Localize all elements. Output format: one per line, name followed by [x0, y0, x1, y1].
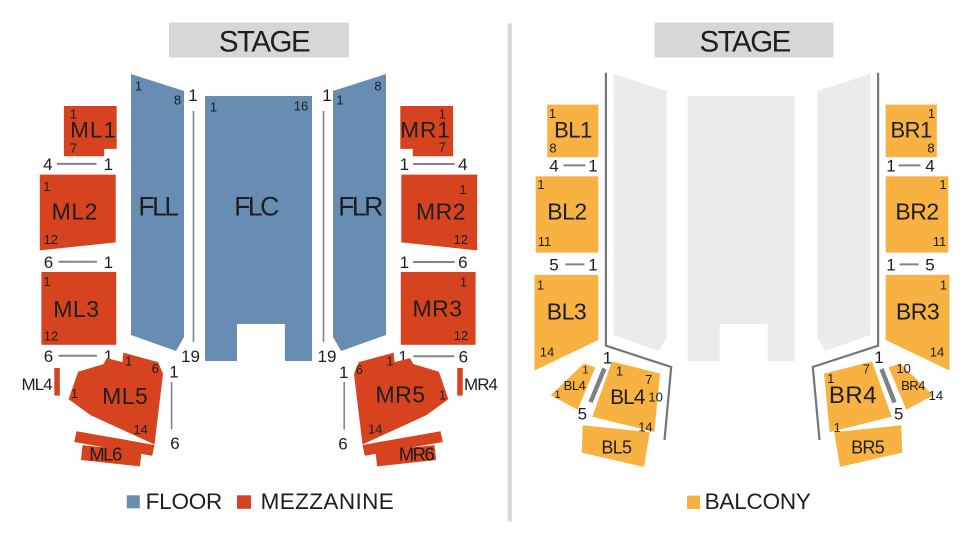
svg-text:1: 1 — [537, 278, 544, 293]
svg-text:1: 1 — [459, 182, 466, 197]
svg-text:6: 6 — [44, 253, 53, 272]
svg-text:5: 5 — [894, 404, 903, 423]
svg-text:MR2: MR2 — [416, 199, 466, 225]
svg-text:ML5: ML5 — [102, 383, 148, 409]
svg-text:8: 8 — [927, 141, 934, 156]
svg-text:1: 1 — [537, 177, 544, 192]
svg-text:12: 12 — [454, 328, 468, 343]
svg-text:MR5: MR5 — [375, 382, 425, 408]
svg-text:1: 1 — [336, 93, 343, 108]
svg-text:6: 6 — [170, 434, 179, 453]
svg-text:ML4: ML4 — [21, 375, 52, 394]
svg-text:1: 1 — [400, 155, 409, 174]
svg-text:1: 1 — [322, 86, 331, 105]
svg-text:1: 1 — [210, 100, 217, 115]
svg-text:BL1: BL1 — [554, 117, 592, 142]
svg-text:1: 1 — [439, 388, 446, 403]
svg-text:1: 1 — [104, 253, 113, 272]
svg-text:14: 14 — [930, 345, 944, 360]
svg-text:4: 4 — [549, 157, 558, 176]
svg-text:MR3: MR3 — [412, 296, 462, 322]
svg-text:1: 1 — [43, 274, 50, 289]
svg-text:12: 12 — [44, 328, 58, 343]
svg-text:BALCONY: BALCONY — [705, 489, 811, 514]
svg-text:1: 1 — [588, 256, 597, 275]
svg-text:1: 1 — [125, 353, 132, 368]
svg-text:5: 5 — [549, 256, 558, 275]
svg-text:10: 10 — [896, 361, 910, 376]
svg-text:1: 1 — [588, 157, 597, 176]
svg-text:1: 1 — [582, 365, 588, 377]
svg-text:11: 11 — [933, 234, 947, 249]
svg-text:6: 6 — [44, 347, 53, 366]
svg-text:10: 10 — [648, 390, 662, 405]
svg-text:BL4: BL4 — [564, 378, 586, 393]
svg-text:19: 19 — [181, 347, 200, 366]
svg-text:FLR: FLR — [338, 192, 382, 222]
svg-text:STAGE: STAGE — [700, 25, 791, 58]
svg-text:BR4: BR4 — [901, 378, 925, 393]
svg-text:BL4: BL4 — [610, 386, 646, 409]
svg-text:1: 1 — [135, 79, 142, 94]
svg-text:BR1: BR1 — [890, 117, 932, 142]
svg-text:8: 8 — [549, 141, 556, 156]
svg-text:BR4: BR4 — [829, 382, 877, 409]
svg-text:1: 1 — [71, 386, 78, 401]
svg-text:1: 1 — [339, 363, 348, 382]
svg-text:7: 7 — [645, 372, 652, 387]
svg-text:4: 4 — [925, 157, 934, 176]
svg-text:7: 7 — [863, 362, 870, 377]
svg-text:12: 12 — [44, 232, 58, 247]
svg-text:1: 1 — [616, 363, 623, 378]
svg-text:1: 1 — [940, 278, 947, 293]
svg-text:1: 1 — [460, 274, 467, 289]
svg-text:ML6: ML6 — [89, 444, 122, 465]
svg-text:BL5: BL5 — [601, 437, 632, 457]
svg-text:1: 1 — [886, 157, 895, 176]
svg-text:MR6: MR6 — [399, 444, 435, 465]
svg-text:MR4: MR4 — [464, 375, 497, 394]
svg-text:5: 5 — [578, 404, 587, 423]
svg-text:5: 5 — [925, 256, 934, 275]
svg-text:7: 7 — [439, 140, 446, 155]
svg-text:1: 1 — [886, 256, 895, 275]
svg-text:6: 6 — [152, 361, 159, 376]
svg-text:BR5: BR5 — [851, 437, 885, 457]
svg-text:1: 1 — [386, 354, 393, 369]
svg-text:1: 1 — [104, 155, 113, 174]
svg-text:1: 1 — [400, 253, 409, 272]
svg-text:1: 1 — [188, 86, 197, 105]
svg-text:STAGE: STAGE — [219, 25, 310, 58]
svg-text:FLC: FLC — [234, 192, 279, 222]
svg-text:16: 16 — [294, 99, 308, 114]
svg-text:19: 19 — [318, 347, 337, 366]
svg-text:FLOOR: FLOOR — [146, 489, 223, 514]
svg-text:1: 1 — [939, 177, 946, 192]
svg-text:FLL: FLL — [138, 192, 178, 222]
svg-text:1: 1 — [43, 179, 50, 194]
svg-text:6: 6 — [338, 435, 347, 454]
svg-text:ML1: ML1 — [70, 117, 117, 142]
svg-text:4: 4 — [43, 155, 52, 174]
svg-text:14: 14 — [929, 388, 943, 403]
svg-text:BL2: BL2 — [547, 199, 586, 225]
svg-text:ML2: ML2 — [52, 199, 98, 225]
svg-text:8: 8 — [374, 79, 381, 94]
svg-text:6: 6 — [459, 348, 468, 367]
svg-text:6: 6 — [458, 253, 467, 272]
svg-text:ML3: ML3 — [53, 296, 99, 322]
svg-text:1: 1 — [554, 389, 560, 401]
svg-text:BR3: BR3 — [896, 298, 939, 324]
svg-text:MEZZANINE: MEZZANINE — [261, 489, 395, 514]
svg-text:14: 14 — [368, 422, 382, 437]
svg-text:1: 1 — [874, 348, 883, 367]
svg-text:BR2: BR2 — [895, 199, 938, 225]
svg-text:1: 1 — [169, 363, 178, 382]
svg-text:14: 14 — [540, 345, 554, 360]
svg-text:4: 4 — [458, 155, 467, 174]
svg-text:8: 8 — [174, 93, 181, 108]
svg-text:7: 7 — [70, 140, 77, 155]
svg-text:1: 1 — [603, 348, 612, 367]
svg-text:14: 14 — [133, 422, 147, 437]
svg-text:12: 12 — [454, 232, 468, 247]
svg-text:11: 11 — [538, 234, 552, 249]
svg-text:6: 6 — [356, 362, 363, 377]
svg-text:BL3: BL3 — [547, 298, 586, 324]
